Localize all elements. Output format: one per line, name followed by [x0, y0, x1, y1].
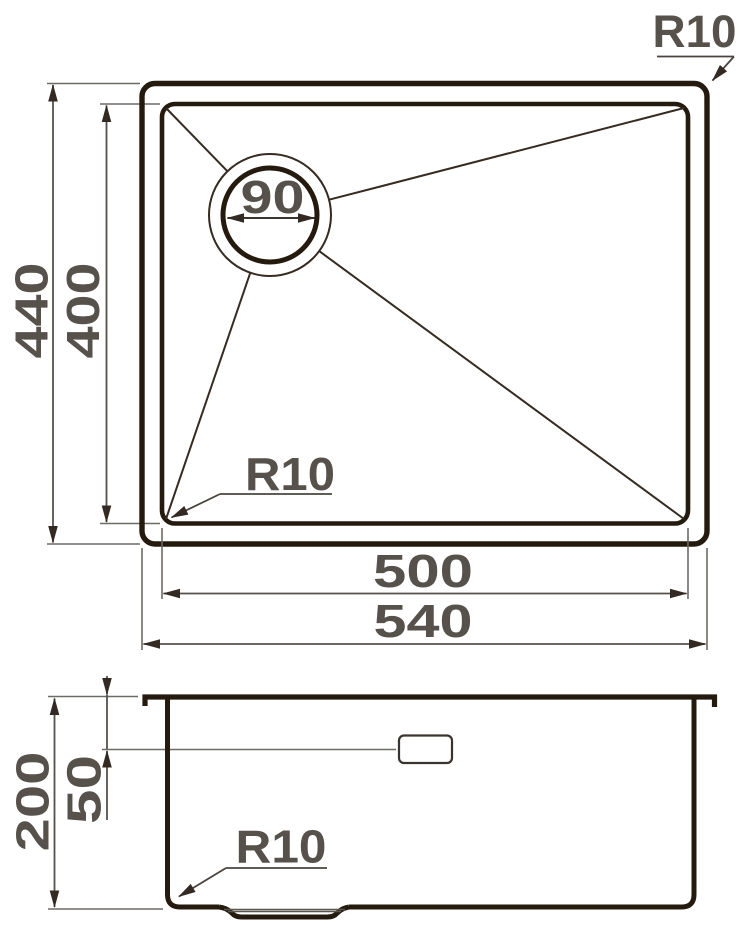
svg-text:R10: R10 — [653, 6, 737, 57]
svg-text:440: 440 — [6, 263, 58, 359]
svg-text:50: 50 — [59, 755, 112, 824]
svg-text:200: 200 — [7, 752, 59, 852]
svg-text:400: 400 — [57, 263, 109, 359]
svg-text:540: 540 — [374, 595, 473, 647]
svg-text:500: 500 — [373, 545, 473, 597]
svg-text:R10: R10 — [245, 448, 335, 500]
svg-text:90: 90 — [241, 171, 305, 223]
svg-text:R10: R10 — [236, 821, 327, 873]
